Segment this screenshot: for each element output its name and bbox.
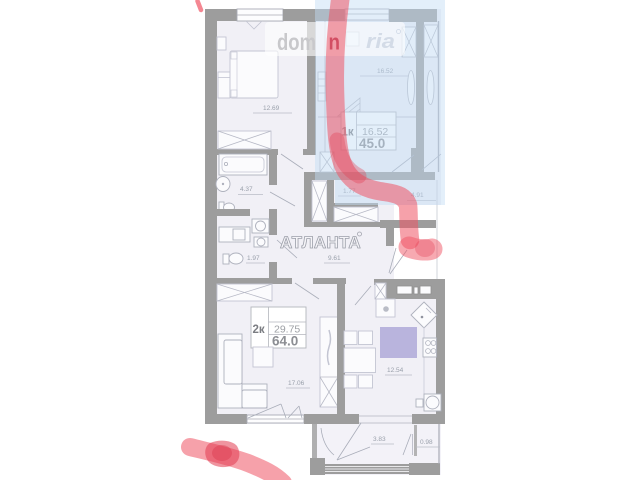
svg-text:ria: ria <box>366 31 395 53</box>
svg-text:4.37: 4.37 <box>240 186 253 193</box>
svg-text:dom: dom <box>277 29 316 55</box>
svg-text:64.0: 64.0 <box>272 334 298 349</box>
svg-text:9.61: 9.61 <box>328 255 341 262</box>
svg-text:17.06: 17.06 <box>288 380 305 387</box>
svg-text:12.69: 12.69 <box>263 105 280 112</box>
svg-text:2к: 2к <box>253 324 265 336</box>
svg-text:3.83: 3.83 <box>373 436 386 443</box>
svg-text:АТЛАНТА: АТЛАНТА <box>280 233 361 252</box>
svg-text:12.54: 12.54 <box>387 367 404 374</box>
svg-text:n: n <box>329 30 341 55</box>
svg-text:0.98: 0.98 <box>420 439 433 446</box>
svg-text:1.97: 1.97 <box>247 255 260 262</box>
